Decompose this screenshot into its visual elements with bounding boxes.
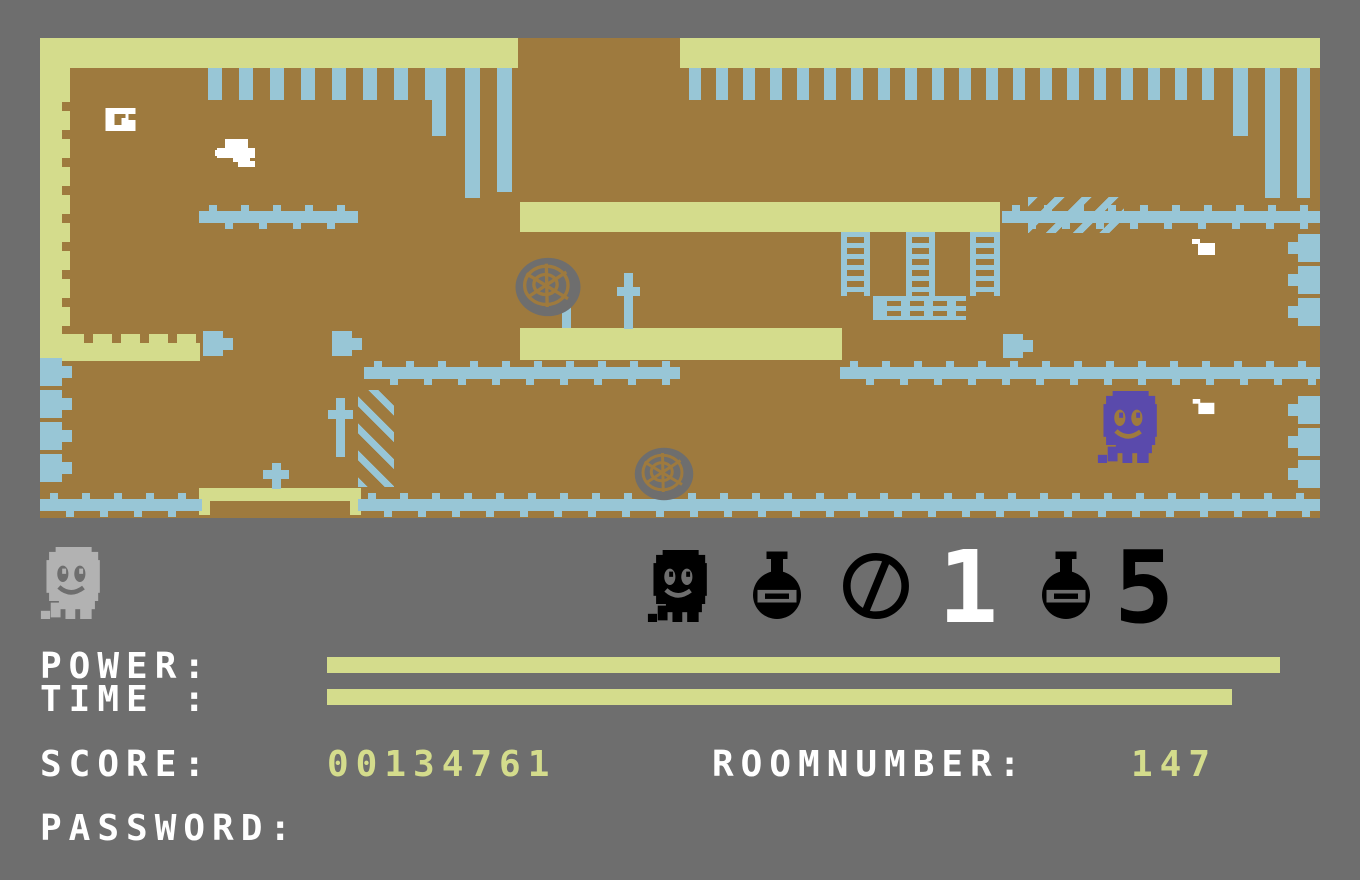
spiked-floor: [358, 493, 1320, 517]
spike-bumper: [1003, 334, 1033, 358]
hanging-bar-fence: [208, 68, 439, 100]
top-wall-left: [40, 38, 518, 68]
power-meter: [327, 657, 1280, 673]
hanging-bar-fence: [689, 68, 1214, 100]
time-label: TIME :: [40, 683, 212, 717]
wall-spike: [40, 422, 72, 450]
wall-spike: [40, 358, 72, 386]
wall-spike: [1288, 428, 1320, 456]
left-wall-crenellation: [62, 102, 70, 338]
spike-bumper: [203, 331, 233, 356]
time-meter: [327, 689, 1232, 705]
no-circle-icon: [841, 551, 911, 621]
white-bird-small: [1192, 399, 1216, 415]
flask-icon: [753, 551, 801, 621]
hanging-bar: [432, 68, 446, 136]
ladder-bridge: [873, 296, 966, 320]
spiked-bar: [199, 205, 358, 229]
roomnumber-value: 147: [1131, 748, 1217, 782]
playfield[interactable]: [40, 38, 1320, 518]
ghost-icon: [646, 550, 712, 622]
table-platform-top: [199, 488, 361, 501]
score-label: SCORE:: [40, 748, 212, 782]
wall-spike: [1288, 460, 1320, 488]
password-label: PASSWORD:: [40, 812, 298, 846]
web-ball: [508, 257, 588, 317]
wall-spike: [1288, 396, 1320, 424]
hanging-bar: [1265, 68, 1280, 198]
hanging-bar: [1233, 68, 1248, 136]
ring-item: [105, 108, 136, 131]
mid-platform: [520, 328, 842, 360]
grave-cross: [617, 273, 640, 329]
ladder: [970, 232, 1000, 296]
top-wall-right: [680, 38, 1320, 68]
spiked-floor: [40, 493, 202, 517]
wall-spike: [1288, 266, 1320, 294]
wall-spike: [1288, 298, 1320, 326]
hatched-column: [358, 390, 394, 487]
flask-counter: 5: [1114, 550, 1174, 626]
hanging-bar: [1297, 68, 1310, 198]
spike-bumper: [332, 331, 362, 356]
wall-spike: [1288, 234, 1320, 262]
hanging-bar: [465, 68, 480, 198]
left-platform-crenellation: [84, 334, 200, 343]
web-ball: [634, 438, 694, 510]
white-bird: [215, 138, 259, 168]
white-bird-small: [1192, 239, 1216, 256]
game-screen: 1 5 POWER: TIME : SCORE: 00134761 ROOMNU…: [0, 0, 1360, 880]
flask-icon: [1042, 551, 1090, 621]
spiked-bar: [840, 361, 1320, 385]
ceiling-platform: [520, 202, 1000, 232]
hatched-panel: [1028, 197, 1124, 233]
ghost-counter: 1: [938, 550, 998, 626]
grave-cross: [328, 398, 353, 457]
roomnumber-label: ROOMNUMBER:: [712, 748, 1027, 782]
purple-ghost-enemy: [1093, 391, 1165, 463]
wall-spike: [40, 454, 72, 482]
wall-spike: [40, 390, 72, 418]
spiked-bar: [364, 361, 680, 385]
ladder: [841, 232, 870, 296]
grave-cross-small: [263, 463, 289, 489]
score-value: 00134761: [327, 748, 556, 782]
lives-ghost-icon: [38, 547, 106, 619]
hanging-bar: [497, 68, 512, 192]
